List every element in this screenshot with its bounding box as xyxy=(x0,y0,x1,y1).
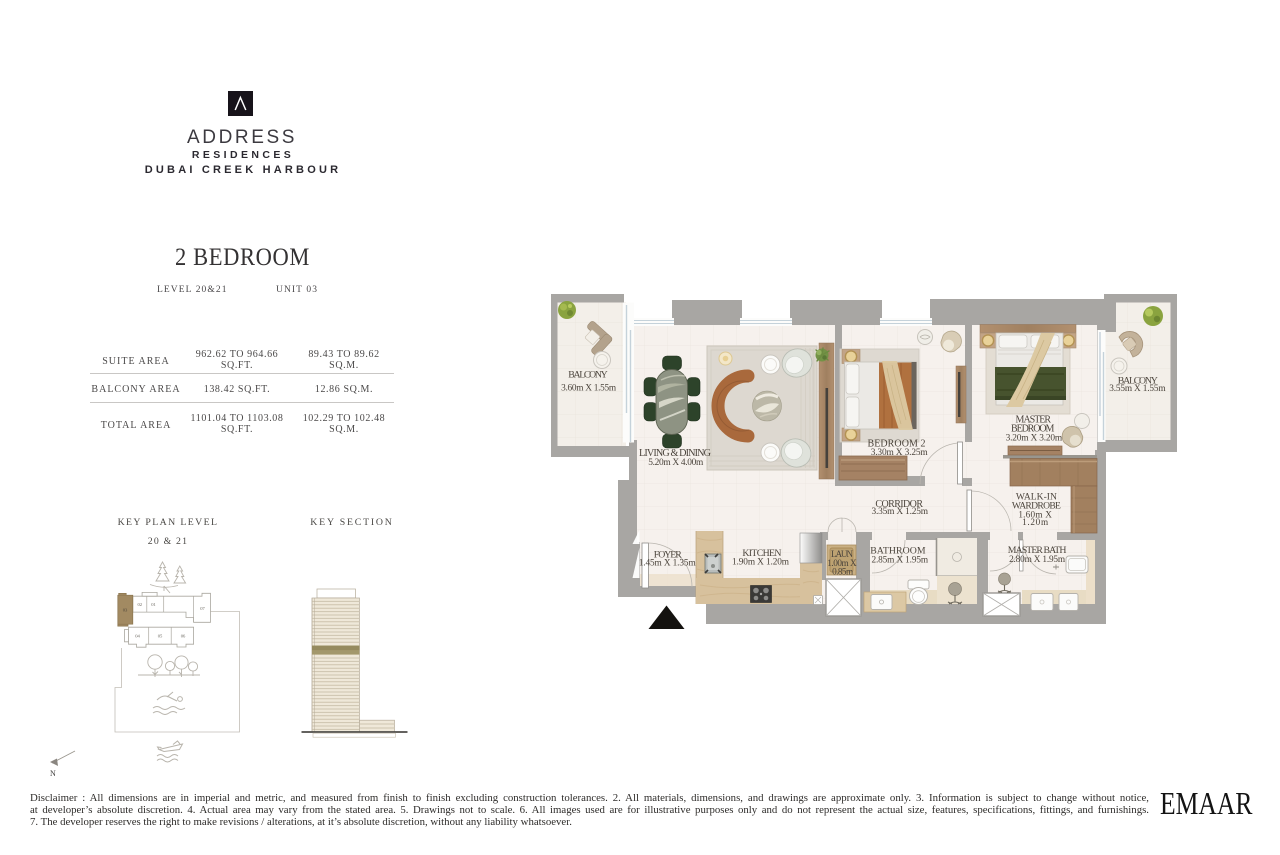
svg-text:07: 07 xyxy=(200,606,205,611)
svg-text:1.45m X 1.35m: 1.45m X 1.35m xyxy=(639,559,697,569)
svg-text:2.85m X 1.95m: 2.85m X 1.95m xyxy=(872,556,929,566)
svg-text:1.90m X 1.20m: 1.90m X 1.20m xyxy=(732,558,790,568)
svg-text:06: 06 xyxy=(181,634,186,639)
svg-text:05: 05 xyxy=(158,634,163,639)
svg-text:01: 01 xyxy=(151,602,156,607)
svg-text:N: N xyxy=(50,769,56,778)
svg-text:3.35m X 1.25m: 3.35m X 1.25m xyxy=(872,507,929,517)
svg-text:BALCONY: BALCONY xyxy=(568,370,608,381)
svg-text:04: 04 xyxy=(135,634,140,639)
svg-text:3.20m X 3.20m: 3.20m X 3.20m xyxy=(1006,433,1063,443)
svg-text:02: 02 xyxy=(138,602,143,607)
svg-text:3.55m X 1.55m: 3.55m X 1.55m xyxy=(1109,384,1166,394)
svg-text:0.85m: 0.85m xyxy=(832,566,853,576)
svg-text:5.20m X 4.00m: 5.20m X 4.00m xyxy=(648,458,704,468)
svg-text:2.80m X 1.95m: 2.80m X 1.95m xyxy=(1009,555,1066,565)
svg-text:3.30m X 3.25m: 3.30m X 3.25m xyxy=(871,448,929,458)
svg-text:1.20m: 1.20m xyxy=(1022,517,1048,527)
svg-text:3.60m X 1.55m: 3.60m X 1.55m xyxy=(561,384,617,394)
svg-text:03: 03 xyxy=(123,608,128,613)
